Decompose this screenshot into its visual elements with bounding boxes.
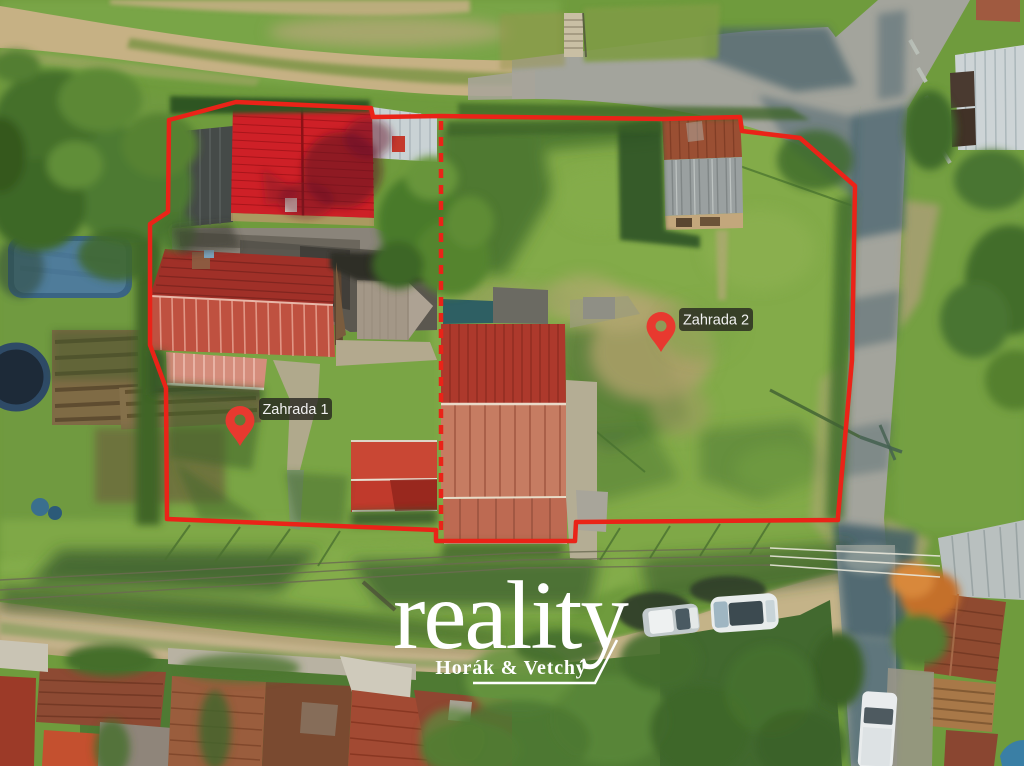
svg-text:Zahrada 2: Zahrada 2 <box>683 313 749 329</box>
svg-text:reality: reality <box>393 562 629 669</box>
svg-text:Horák & Vetchý: Horák & Vetchý <box>435 657 586 679</box>
svg-text:Zahrada 1: Zahrada 1 <box>262 402 328 418</box>
